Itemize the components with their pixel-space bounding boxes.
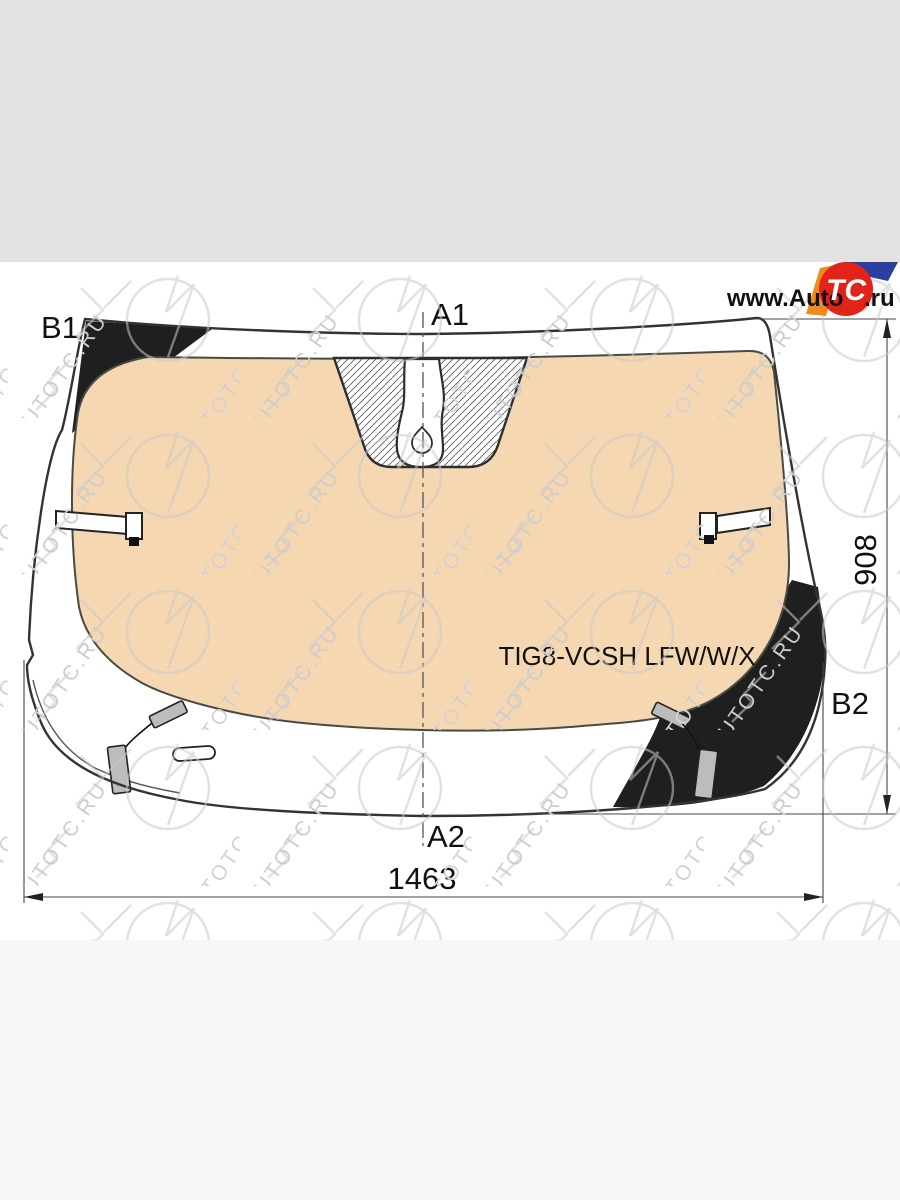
logo-badge-text: TC: [826, 274, 867, 307]
top-gray-band: [0, 0, 900, 262]
windshield-diagram-page: AUTOTC.RU AUTOTC.RU: [0, 0, 900, 1200]
watermark-overlay: [0, 262, 900, 940]
windshield-diagram: AUTOTC.RU AUTOTC.RU: [0, 0, 900, 1200]
bottom-gray-band: [0, 940, 900, 1200]
logo-text-suffix: .ru: [864, 285, 895, 312]
